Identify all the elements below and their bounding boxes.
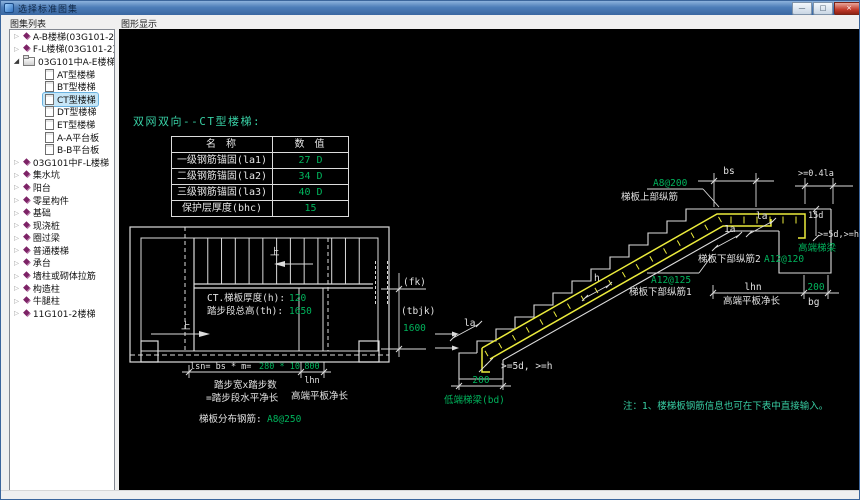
tree-item-label: 墙柱或砌体拉筋 (33, 269, 96, 282)
box-icon: ◆ (23, 32, 30, 41)
expand-arrow-icon[interactable]: ▷ (12, 171, 21, 179)
app-icon (4, 3, 14, 13)
tree-item-label: DT型楼梯 (57, 105, 96, 118)
plan-thickness-value: 120 (289, 293, 306, 304)
dim-la: la (756, 211, 767, 222)
tree-item-label: B-B平台板 (57, 143, 99, 156)
plan-up-label-bottom: 上 (181, 321, 191, 332)
dim-200-right: 200 (807, 282, 824, 293)
box-icon: ◆ (23, 221, 30, 230)
lower-bar1-label: 梯板下部纵筋1 (629, 286, 692, 298)
dim-lhn-caption: 高端平板净长 (723, 295, 781, 307)
tree-item-label: 零星构件 (33, 194, 69, 207)
expand-arrow-icon[interactable]: ▷ (12, 196, 21, 204)
box-icon: ◆ (23, 233, 30, 242)
tree-item-8[interactable]: A-A平台板 (10, 131, 114, 144)
doc-icon (45, 132, 54, 143)
expand-arrow-icon[interactable]: ▷ (12, 234, 21, 242)
tree-item-21[interactable]: ▷◆牛腿柱 (10, 294, 114, 307)
box-icon: ◆ (23, 271, 30, 280)
tree-item-label: 阳台 (33, 181, 51, 194)
plan-total-height-label: 踏步段总高(th): (207, 305, 283, 317)
tree-item-label: ET型楼梯 (57, 118, 95, 131)
upper-bar-label: 梯板上部纵筋 (621, 191, 678, 203)
close-button[interactable]: × (834, 2, 859, 15)
tree-item-label: 圈过梁 (33, 231, 60, 244)
doc-icon (45, 94, 54, 105)
window-title: 选择标准图集 (18, 2, 78, 15)
dim-bs: bs (723, 166, 734, 177)
box-icon: ◆ (23, 258, 30, 267)
tree-item-label: 普通楼梯 (33, 244, 69, 257)
minimize-button[interactable]: — (792, 2, 812, 15)
tree-item-17[interactable]: ▷◆普通楼梯 (10, 244, 114, 257)
box-icon: ◆ (23, 284, 30, 293)
plan-caption-1: 踏步宽x踏步数 (214, 379, 277, 391)
dim-800: 800 (304, 362, 319, 372)
collapse-arrow-icon[interactable]: ◢ (12, 57, 21, 65)
stair-drawing: 上 上 CT.梯板厚度(h): 120 踏步段总高(th): 1650 (fk)… (119, 41, 859, 491)
tree-item-label: 11G101-2楼梯 (33, 307, 96, 320)
drawing-canvas: 双网双向--CT型楼梯: 名 称数 值一级钢筋锚固(la1)27 D二级钢筋锚固… (119, 29, 859, 491)
box-icon: ◆ (23, 208, 30, 217)
box-icon: ◆ (23, 158, 30, 167)
distribution-bar-label: 梯板分布钢筋: (199, 413, 262, 425)
expand-arrow-icon[interactable]: ▷ (12, 259, 21, 267)
dim-lhn-plan: lhn (304, 376, 319, 386)
expand-arrow-icon[interactable]: ▷ (12, 45, 21, 53)
drawing-note: 注：1、楼梯板钢筋信息也可在下表中直接输入。 (623, 400, 828, 412)
folder-icon (23, 57, 35, 66)
tree-item-18[interactable]: ▷◆承台 (10, 257, 114, 270)
plan-caption-2: =踏步段水平净长 (206, 392, 279, 404)
dim-lhn: lhn (744, 282, 761, 293)
tree-item-label: 基础 (33, 206, 51, 219)
dim-1a: 1a (724, 224, 735, 235)
doc-icon (45, 106, 54, 117)
expand-arrow-icon[interactable]: ▷ (12, 309, 21, 317)
tree-item-label: 承台 (33, 256, 51, 269)
expand-arrow-icon[interactable]: ▷ (12, 297, 21, 305)
tree-item-11[interactable]: ▷◆集水坑 (10, 169, 114, 182)
tree-item-label: 现浇桩 (33, 219, 60, 232)
tree-item-label: AT型楼梯 (57, 68, 95, 81)
tree-item-7[interactable]: ET型楼梯 (10, 118, 114, 131)
box-icon: ◆ (23, 44, 30, 53)
tree-item-label: F-L楼梯(03G101-2) (33, 42, 115, 55)
low-beam-label: 低端梯梁(bd) (444, 394, 505, 406)
atlas-tree[interactable]: ▷◆A-B楼梯(03G101-2)▷◆F-L楼梯(03G101-2)◢03G10… (9, 29, 115, 491)
tree-item-label: A-A平台板 (57, 131, 99, 144)
tree-item-label: 牛腿柱 (33, 294, 60, 307)
expand-arrow-icon[interactable]: ▷ (12, 183, 21, 191)
tree-item-label: BT型楼梯 (57, 80, 96, 93)
upper-bar-value: A8@200 (653, 178, 688, 189)
tree-item-label: 构造柱 (33, 282, 60, 295)
dim-la-low: la (464, 318, 475, 329)
box-icon: ◆ (23, 183, 30, 192)
tree-item-3[interactable]: AT型楼梯 (10, 68, 114, 81)
plan-thickness-label: CT.梯板厚度(h): (207, 292, 285, 304)
tree-item-19[interactable]: ▷◆墙柱或砌体拉筋 (10, 269, 114, 282)
tree-item-label: 03G101中A-E楼梯 (38, 55, 115, 68)
expand-arrow-icon[interactable]: ▷ (12, 246, 21, 254)
dim-formula-value: 280 * 10 (259, 362, 300, 372)
window: 选择标准图集 — □ × 图集列表 图形显示 ▷◆A-B楼梯(03G101-2)… (0, 0, 860, 500)
expand-arrow-icon[interactable]: ▷ (12, 158, 21, 166)
thickness-arrow-2 (452, 346, 459, 351)
dim-fk: (fk) (403, 277, 426, 288)
tree-item-1[interactable]: ▷◆F-L楼梯(03G101-2) (10, 43, 114, 56)
tree-item-6[interactable]: DT型楼梯 (10, 106, 114, 119)
tree-item-15[interactable]: ▷◆现浇桩 (10, 219, 114, 232)
tree-item-9[interactable]: B-B平台板 (10, 143, 114, 156)
tree-item-0[interactable]: ▷◆A-B楼梯(03G101-2) (10, 30, 114, 43)
doc-icon (45, 119, 54, 130)
expand-arrow-icon[interactable]: ▷ (12, 221, 21, 229)
box-icon: ◆ (23, 170, 30, 179)
tree-item-5[interactable]: CT型楼梯 (10, 93, 114, 106)
box-icon: ◆ (23, 196, 30, 205)
dim-tbjk: (tbjk) (401, 306, 435, 317)
maximize-button[interactable]: □ (813, 2, 833, 15)
doc-icon (45, 69, 54, 80)
tree-item-label: A-B楼梯(03G101-2) (33, 30, 115, 43)
tree-item-4[interactable]: BT型楼梯 (10, 80, 114, 93)
plan-caption-3: 高端平板净长 (291, 390, 349, 402)
dim-200-left: 200 (472, 375, 489, 386)
doc-icon (45, 81, 54, 92)
up-arrow-top (274, 261, 285, 267)
lower-bar2-label: 梯板下部纵筋2 (698, 253, 761, 265)
box-icon: ◆ (23, 309, 30, 318)
dim-bg: bg (808, 297, 819, 308)
tree-item-label: CT型楼梯 (57, 93, 96, 106)
lower-bar2-value: A12@120 (764, 254, 804, 265)
tree-item-12[interactable]: ▷◆阳台 (10, 181, 114, 194)
plan-up-label-top: 上 (270, 247, 280, 258)
expand-arrow-icon[interactable]: ▷ (12, 284, 21, 292)
high-beam-label: 高端梯梁 (798, 242, 837, 254)
tree-item-2[interactable]: ◢03G101中A-E楼梯 (10, 55, 114, 68)
expand-arrow-icon[interactable]: ▷ (12, 209, 21, 217)
box-icon: ◆ (23, 246, 30, 255)
plan-total-height-value: 1650 (289, 306, 312, 317)
up-arrow-bottom (199, 331, 210, 337)
box-icon: ◆ (23, 296, 30, 305)
tree-item-label: 集水坑 (33, 168, 60, 181)
expand-arrow-icon[interactable]: ▷ (12, 272, 21, 280)
tree-item-10[interactable]: ▷◆03G101中F-L楼梯 (10, 156, 114, 169)
tree-item-22[interactable]: ▷◆11G101-2楼梯 (10, 307, 114, 320)
dim-1600: 1600 (403, 323, 426, 334)
dim-formula-label: lsn= bs * m= (190, 362, 251, 372)
dim-04la: >=0.4la (798, 169, 834, 179)
tree-item-16[interactable]: ▷◆圈过梁 (10, 232, 114, 245)
distribution-bar-value: A8@250 (267, 414, 302, 425)
tree-item-label: 03G101中F-L楼梯 (33, 156, 109, 169)
doc-icon (45, 144, 54, 155)
dim-5d-h-low: >=5d, >=h (501, 361, 552, 372)
dim-5d-h-right: >=5d,>=h (818, 230, 859, 240)
tree-item-13[interactable]: ▷◆零星构件 (10, 194, 114, 207)
tree-item-20[interactable]: ▷◆构造柱 (10, 282, 114, 295)
elevation-dimensions (435, 173, 853, 390)
dim-h: h (594, 273, 600, 284)
titlebar: 选择标准图集 — □ × (1, 1, 859, 15)
dim-15d: 15d (808, 211, 823, 221)
expand-arrow-icon[interactable]: ▷ (12, 32, 21, 40)
lower-bar1-value: A12@125 (651, 275, 691, 286)
status-bar (1, 490, 859, 499)
tree-item-14[interactable]: ▷◆基础 (10, 206, 114, 219)
